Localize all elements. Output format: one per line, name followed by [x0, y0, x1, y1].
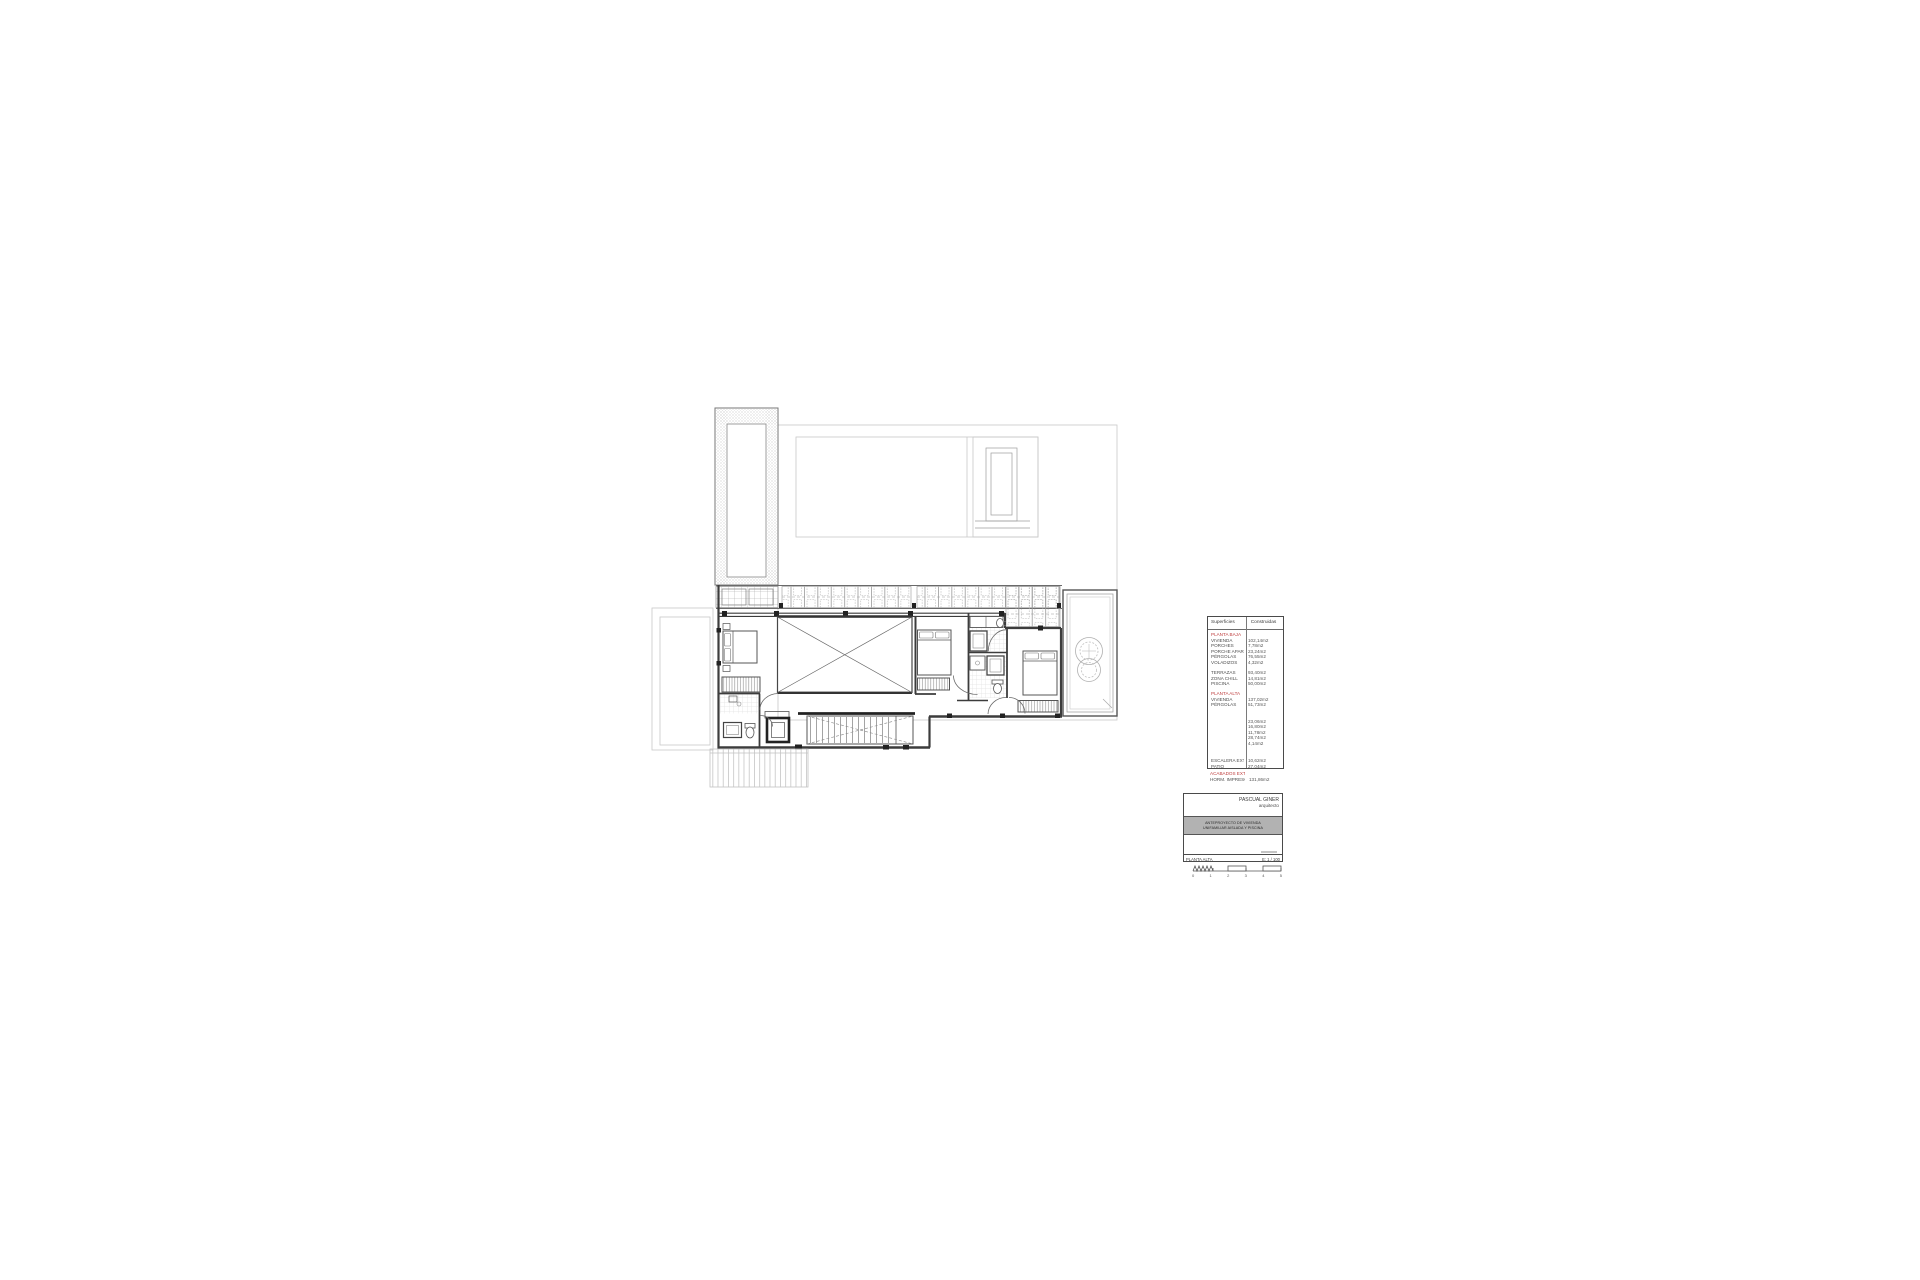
table-header-right: Construidas — [1244, 620, 1283, 626]
elevator — [765, 712, 789, 743]
bedroom3-bed — [1023, 651, 1057, 695]
bedroom2-bed — [918, 630, 952, 675]
title-block-middle — [1184, 835, 1282, 854]
stairs — [798, 714, 915, 745]
scale-bar-numbers: 012345 — [1192, 873, 1282, 878]
scale-number: 0 — [1192, 873, 1194, 878]
areas-table: Superficies Construidas PLANTA BAJAVIVIE… — [1207, 616, 1284, 769]
exterior-stair — [710, 749, 808, 787]
sheet-name: PLANTA ALTA — [1186, 857, 1213, 862]
bedroom1-wardrobe — [722, 677, 760, 692]
floor-plan-drawing — [0, 0, 1920, 1280]
drawing-sheet: Superficies Construidas PLANTA BAJAVIVIE… — [0, 0, 1920, 1280]
bedroom1-bed — [723, 624, 757, 672]
north-arrow-caption — [1261, 851, 1277, 853]
table-row: HORM. IMPRESO131,86m2 — [1207, 777, 1284, 783]
table-header-left: Superficies — [1208, 620, 1244, 626]
chill-zone-grid — [716, 587, 778, 608]
table-column-divider — [1246, 617, 1247, 768]
scale-number: 5 — [1280, 873, 1282, 878]
title-block-footer: PLANTA ALTA E: 1 / 100 — [1184, 854, 1282, 863]
bathroom-top — [970, 617, 1007, 652]
graphic-scale-bar — [1193, 866, 1281, 871]
scale-label: E: 1 / 100 — [1262, 857, 1280, 862]
architect-role: arquitecto — [1184, 803, 1279, 809]
scale-number: 2 — [1227, 873, 1229, 878]
bathroom-left — [720, 695, 758, 739]
right-terrace — [1063, 590, 1117, 716]
architect-name-cell: PASCUAL GINER arquitecto — [1184, 794, 1282, 816]
scale-number: 1 — [1210, 873, 1212, 878]
bedroom3-bench — [1018, 701, 1058, 713]
project-title-band: ANTEPROYECTO DE VIVIENDA UNIFAMILIAR AIS… — [1184, 816, 1282, 835]
title-block: PASCUAL GINER arquitecto ANTEPROYECTO DE… — [1183, 793, 1283, 862]
areas-table-footer: ACABADOS EXT.HORM. IMPRESO131,86m2 — [1207, 771, 1284, 783]
project-title-line2: UNIFAMILIAR AISLADA Y PISCINA — [1184, 826, 1282, 830]
courtyard — [778, 617, 913, 693]
bathroom-bottom — [970, 656, 1006, 714]
scale-number: 4 — [1262, 873, 1264, 878]
bedroom2-wardrobe — [918, 678, 950, 690]
chimney-detail — [975, 448, 1030, 528]
pool — [715, 408, 778, 585]
entry-canopy — [1006, 587, 1060, 627]
scale-number: 3 — [1245, 873, 1247, 878]
